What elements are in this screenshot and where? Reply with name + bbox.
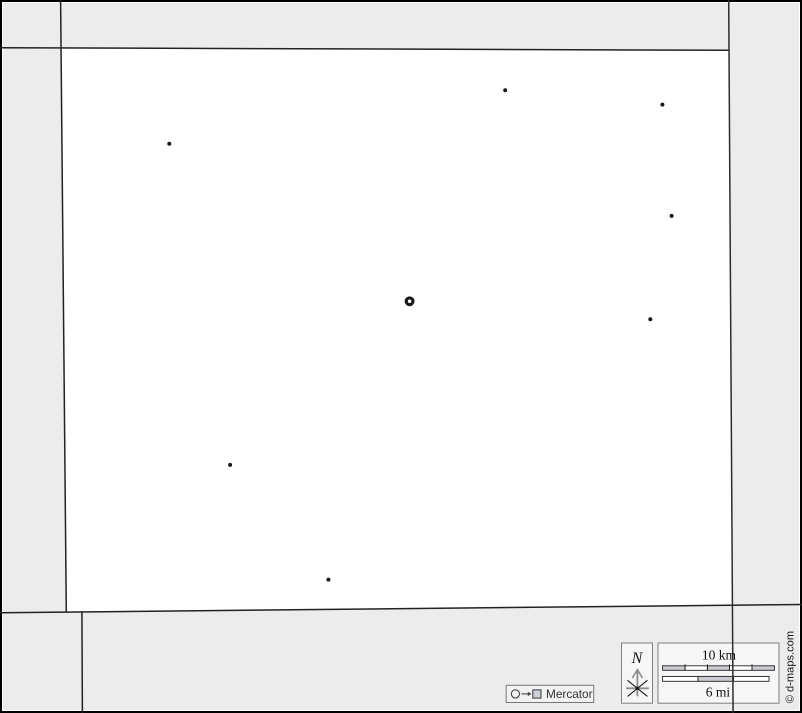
svg-text:Mercator: Mercator	[546, 687, 593, 701]
svg-text:6 mi: 6 mi	[706, 684, 731, 699]
svg-text:N: N	[631, 650, 644, 667]
svg-text:10 km: 10 km	[702, 648, 737, 663]
svg-text:© d-maps.com: © d-maps.com	[785, 631, 797, 703]
